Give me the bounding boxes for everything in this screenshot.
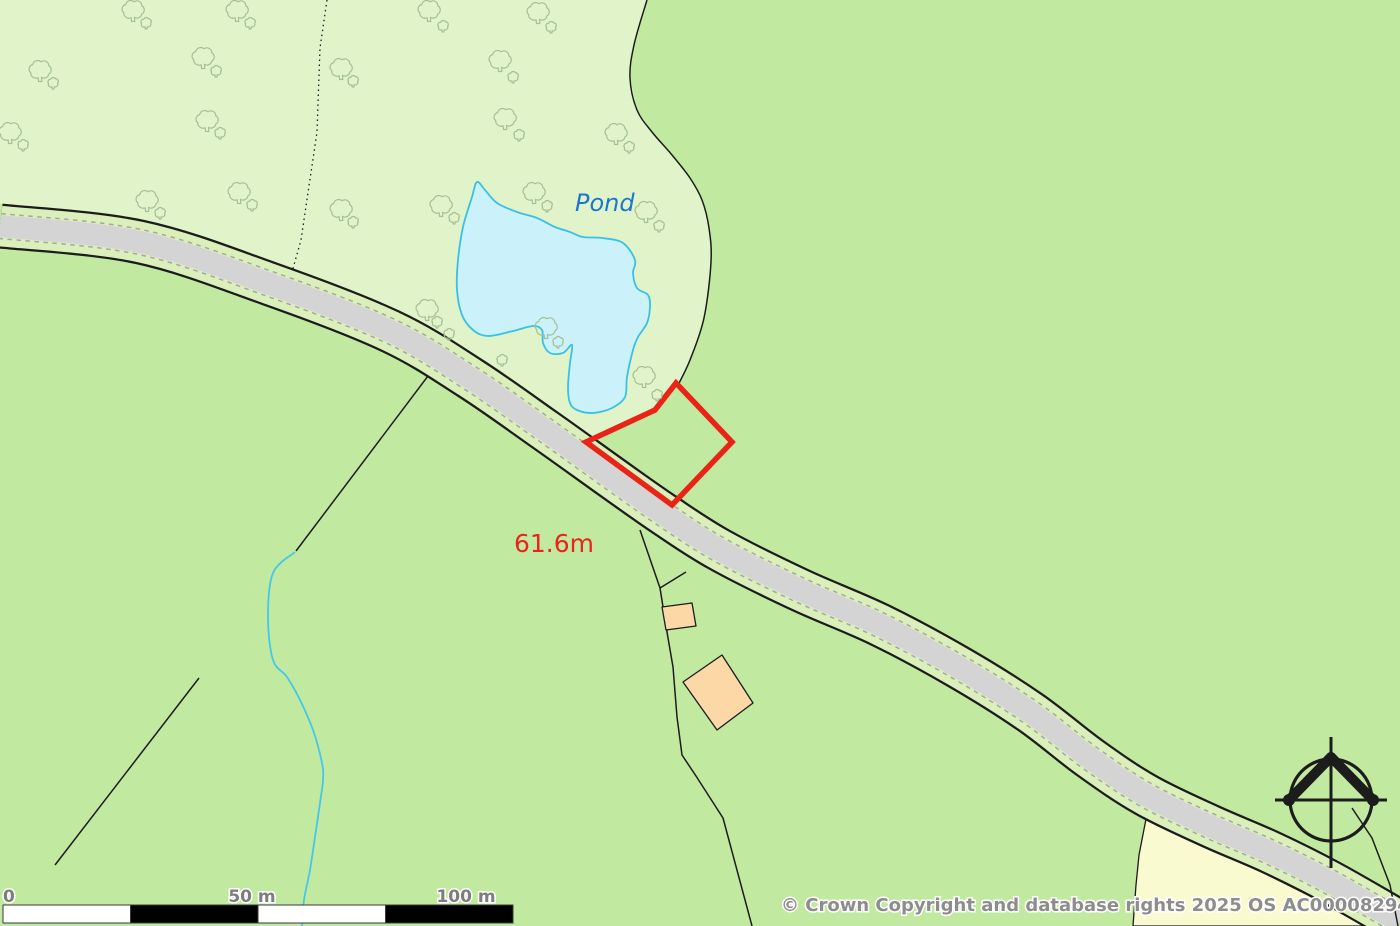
scale-bar-segment	[131, 905, 259, 923]
elevation-label: 61.6m	[514, 529, 594, 558]
scalebar-label-50: 50 m	[228, 887, 275, 907]
copyright-label: © Crown Copyright and database rights 20…	[781, 895, 1400, 916]
pond-label: Pond	[575, 189, 635, 217]
compass-dot	[1283, 794, 1295, 806]
map-viewport: Pond 61.6m © Crown Copyright and databas…	[0, 0, 1400, 926]
map-canvas: Pond 61.6m © Crown Copyright and databas…	[0, 0, 1400, 926]
scale-bar	[3, 905, 513, 923]
compass-dot	[1367, 794, 1379, 806]
scalebar-label-100: 100 m	[436, 887, 495, 907]
scale-bar-segment	[258, 905, 386, 923]
scalebar-label-0: 0	[3, 887, 15, 907]
compass-dot	[1326, 752, 1336, 762]
scale-bar-segment	[386, 905, 514, 923]
scale-bar-segment	[3, 905, 131, 923]
map-shapes	[0, 0, 1400, 926]
building	[662, 603, 696, 630]
